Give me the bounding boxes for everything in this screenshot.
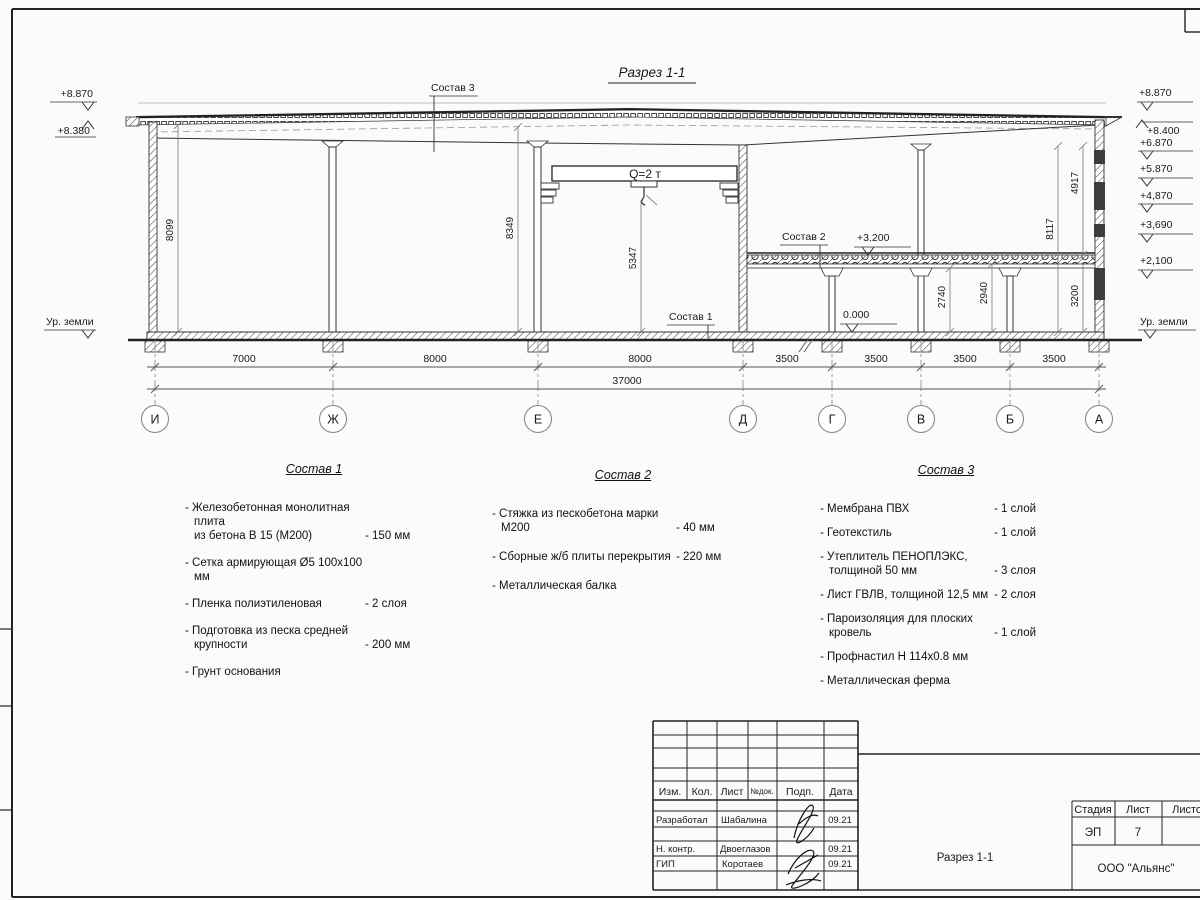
composition-title: Состав 3	[820, 463, 1072, 478]
column-axis-v	[918, 150, 924, 332]
tb-doc-title: Разрез 1-1	[937, 852, 993, 864]
tb-company: ООО "Альянс"	[1098, 863, 1175, 875]
item-name: - Лист ГВЛВ, толщиной 12,5 мм	[820, 588, 994, 602]
elev-right-2: +6.870	[1140, 137, 1173, 149]
item-name: - Металлическая балка	[492, 579, 676, 593]
drawing-sheet: Разрез 1-1	[0, 0, 1200, 900]
dim-right-upper: 4917	[1070, 171, 1081, 194]
ground-level-label-left: Ур. земли	[46, 316, 94, 328]
composition-title: Состав 2	[492, 468, 754, 483]
wall-panel	[1094, 150, 1105, 164]
tb-stage-label: Стадия	[1074, 804, 1112, 816]
composition-list-1: Состав 1 - Железобетонная монолитная пли…	[185, 462, 443, 692]
composition-leaders: Состав 3 Состав 2 Состав 1	[429, 82, 828, 338]
item-name: - Геотекстиль	[820, 526, 994, 540]
item-value: - 3 слоя	[994, 564, 1072, 578]
composition-title: Состав 1	[185, 462, 443, 477]
tb-col-data: Дата	[829, 786, 852, 798]
zero-level-mark: 0.000	[843, 309, 869, 321]
tb-name-1: Двоеглазов	[720, 844, 771, 855]
item-name: - Металлическая ферма	[820, 674, 994, 688]
elevations-left: +8.870 +8.380 Ур. земли	[44, 88, 97, 338]
composition-item: - Железобетонная монолитная плита из бет…	[185, 501, 443, 543]
wall-axis-d	[739, 145, 747, 332]
elev-right-4: +4,870	[1140, 190, 1173, 202]
composition-item: - Профнастил Н 114x0.8 мм	[820, 650, 1072, 664]
tb-stage-value: ЭП	[1085, 827, 1102, 839]
composition-list-2: Состав 2 - Стяжка из пескобетона марки М…	[492, 468, 754, 608]
tb-name-0: Шабалина	[721, 815, 768, 826]
axis-label-6: Б	[1006, 413, 1014, 427]
item-name: - Пароизоляция для плоских кровель	[820, 612, 994, 640]
item-name: - Подготовка из песка средней крупности	[185, 624, 365, 652]
item-value: - 2 слоя	[994, 588, 1072, 602]
roof-decking	[136, 110, 1106, 125]
item-value: - 1 слой	[994, 626, 1072, 640]
dim-crane: 5347	[628, 246, 639, 269]
dim-right-full: 8117	[1045, 218, 1056, 240]
left-eave-cap	[126, 117, 139, 126]
walls-and-columns	[149, 120, 1105, 332]
elev-left-ridge: +8.870	[61, 88, 94, 100]
composition-item: - Мембрана ПВХ - 1 слой	[820, 502, 1072, 516]
elevation-mark-icon	[82, 102, 94, 110]
tb-col-list: Лист	[721, 786, 744, 798]
composition-item: - Грунт основания	[185, 665, 443, 679]
item-value: - 40 мм	[676, 521, 754, 535]
tb-col-podp: Подп.	[786, 786, 814, 798]
tb-sheets-label: Листов	[1172, 804, 1200, 816]
item-value: - 220 мм	[676, 550, 754, 564]
wall-panel	[1094, 268, 1105, 300]
span-dim-0: 7000	[232, 353, 256, 365]
axis-label-1: Ж	[327, 413, 339, 427]
item-name: - Грунт основания	[185, 665, 365, 679]
composition-item: - Пленка полиэтиленовая - 2 слоя	[185, 597, 443, 611]
elevation-mark-icon	[82, 330, 94, 338]
item-name: - Пленка полиэтиленовая	[185, 597, 365, 611]
column-axis-b-lower	[1007, 276, 1013, 332]
tb-col-izm: Изм.	[659, 786, 682, 798]
span-dim-4: 3500	[864, 353, 888, 365]
composition-item: - Подготовка из песка средней крупности …	[185, 624, 443, 652]
span-dim-3: 3500	[775, 353, 799, 365]
span-dim-2: 8000	[628, 353, 652, 365]
item-name: - Железобетонная монолитная плита из бет…	[185, 501, 365, 543]
tb-date-0: 09.21	[828, 815, 852, 826]
item-value: - 1 слой	[994, 526, 1072, 540]
crane-beam: Q=2 т	[541, 166, 738, 205]
axis-label-3: Д	[739, 413, 748, 427]
composition-item: - Стяжка из пескобетона марки М200 - 40 …	[492, 507, 754, 535]
vertical-dimensions	[174, 121, 1087, 336]
composition-item: - Лист ГВЛВ, толщиной 12,5 мм - 2 слоя	[820, 588, 1072, 602]
elev-right-1: +8.400	[1147, 125, 1180, 137]
elev-right-5: +3,690	[1140, 219, 1173, 231]
item-name: - Профнастил Н 114x0.8 мм	[820, 650, 994, 664]
tb-name-2: Коротаев	[722, 859, 763, 870]
elev-right-6: +2,100	[1140, 255, 1173, 267]
item-value: - 1 слой	[994, 502, 1072, 516]
axis-label-4: Г	[829, 413, 836, 427]
item-name: - Сетка армирующая Ø5 100x100 мм	[185, 556, 365, 584]
composition-item: - Сетка армирующая Ø5 100x100 мм	[185, 556, 443, 584]
axis-bubbles: И Ж Е Д Г В Б А	[142, 406, 1113, 433]
item-name: - Утеплитель ПЕНОПЛЭКС, толщиной 50 мм	[820, 550, 994, 578]
axis-extension-lines	[155, 340, 1099, 405]
section-title: Разрез 1-1	[619, 65, 686, 80]
elevations-right: +8.870 +8.400 +6.870 +5.870 +4,870 +3,69…	[1136, 87, 1196, 338]
tb-sheet-value: 7	[1135, 827, 1141, 839]
span-dim-1: 8000	[423, 353, 447, 365]
level-marks: +3.200 0.000	[840, 232, 911, 332]
ground-floor	[128, 332, 1142, 352]
item-name: - Стяжка из пескобетона марки М200	[492, 507, 676, 535]
item-value: - 2 слоя	[365, 597, 443, 611]
composition-item: - Сборные ж/б плиты перекрытия - 220 мм	[492, 550, 754, 564]
tb-sheet-label: Лист	[1126, 804, 1150, 816]
dim-floor1: 3200	[1070, 284, 1081, 307]
tb-date-2: 09.21	[828, 859, 852, 870]
axis-label-2: Е	[534, 413, 542, 427]
axis-label-0: И	[151, 413, 160, 427]
axis-label-5: В	[917, 413, 925, 427]
section-drawing: Разрез 1-1	[0, 0, 1200, 900]
crane-capacity-label: Q=2 т	[629, 167, 661, 181]
tb-col-ndok: №док.	[750, 787, 773, 796]
axis-label-7: А	[1095, 413, 1104, 427]
tb-role-1: Н. контр.	[656, 844, 695, 855]
column-axis-zh	[329, 147, 336, 332]
composition-item: - Металлическая ферма	[820, 674, 1072, 688]
column-axis-g-lower	[829, 276, 835, 332]
elev-left-eave: +8.380	[58, 125, 91, 137]
dim-mid: 8349	[505, 216, 516, 239]
tb-col-kol: Кол.	[692, 786, 713, 798]
tb-role-2: ГИП	[656, 859, 675, 870]
sheet-frame	[0, 9, 1200, 897]
item-value: - 200 мм	[365, 638, 443, 652]
wall-axis-i	[149, 122, 157, 332]
leader-sostav1: Состав 1	[669, 311, 713, 323]
tb-role-0: Разработал	[656, 815, 708, 826]
ground-level-label-right: Ур. земли	[1140, 316, 1188, 328]
elev-right-3: +5.870	[1140, 163, 1173, 175]
dim-under-slab: 2940	[979, 281, 990, 304]
leader-sostav3: Состав 3	[431, 82, 475, 94]
wall-panel	[1094, 182, 1105, 210]
wall-panel	[1094, 224, 1105, 237]
span-dim-6: 3500	[1042, 353, 1066, 365]
composition-item: - Пароизоляция для плоских кровель - 1 с…	[820, 612, 1072, 640]
leader-sostav2: Состав 2	[782, 231, 826, 243]
dim-wall-left: 8099	[165, 218, 176, 241]
elev-right-0: +8.870	[1139, 87, 1172, 99]
tb-date-1: 09.21	[828, 844, 852, 855]
span-dim-5: 3500	[953, 353, 977, 365]
dim-under-beam: 2740	[937, 285, 948, 308]
composition-item: - Геотекстиль - 1 слой	[820, 526, 1072, 540]
total-dim: 37000	[612, 375, 641, 387]
item-value: - 150 мм	[365, 529, 443, 543]
composition-item: - Металлическая балка	[492, 579, 754, 593]
roof-structure	[126, 103, 1122, 145]
item-name: - Мембрана ПВХ	[820, 502, 994, 516]
item-name: - Сборные ж/б плиты перекрытия	[492, 550, 676, 564]
crane-hook-icon	[642, 197, 645, 205]
composition-item: - Утеплитель ПЕНОПЛЭКС, толщиной 50 мм -…	[820, 550, 1072, 578]
slab-level-mark: +3.200	[857, 232, 890, 244]
composition-list-3: Состав 3 - Мембрана ПВХ - 1 слой - Геоте…	[820, 463, 1072, 698]
column-axis-e	[534, 147, 541, 332]
